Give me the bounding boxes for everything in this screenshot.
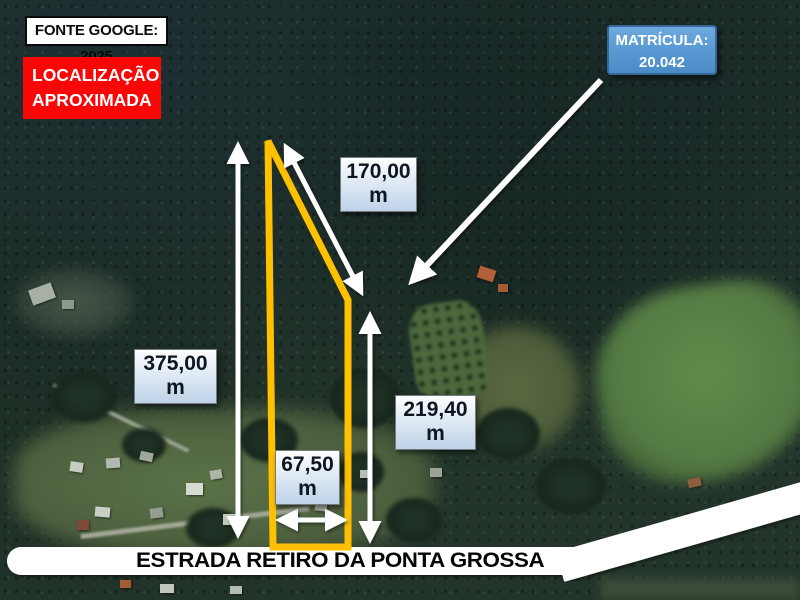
location-badge-line2: APROXIMADA [32,88,161,113]
measurement-value: 219,40 [396,398,475,422]
matricula-badge: MATRÍCULA: 20.042 [607,25,717,75]
measurement-value: 67,50 [276,453,339,477]
road-name-label: ESTRADA RETIRO DA PONTA GROSSA [136,548,502,573]
measurement-unit: m [276,477,339,501]
source-tag: FONTE GOOGLE: 2025 [25,16,168,46]
measurement-left-side: 375,00 m [134,349,217,404]
location-badge-line1: LOCALIZAÇÃO [32,63,161,88]
measurement-value: 375,00 [135,352,216,376]
measurement-frontage: 67,50 m [275,450,340,505]
measurement-unit: m [135,376,216,400]
location-approx-badge: LOCALIZAÇÃO APROXIMADA [23,57,161,119]
matricula-title: MATRÍCULA: [609,30,715,52]
measurement-value: 170,00 [341,160,416,184]
satellite-map-canvas: FONTE GOOGLE: 2025 LOCALIZAÇÃO APROXIMAD… [0,0,800,600]
measurement-unit: m [396,422,475,446]
arrow-matricula-pointer [414,80,601,279]
measurement-diagonal: 170,00 m [340,157,417,212]
measurement-unit: m [341,184,416,208]
road-name-text: ESTRADA RETIRO DA PONTA GROSSA [136,548,544,572]
matricula-number: 20.042 [609,52,715,74]
measurement-right-side: 219,40 m [395,395,476,450]
